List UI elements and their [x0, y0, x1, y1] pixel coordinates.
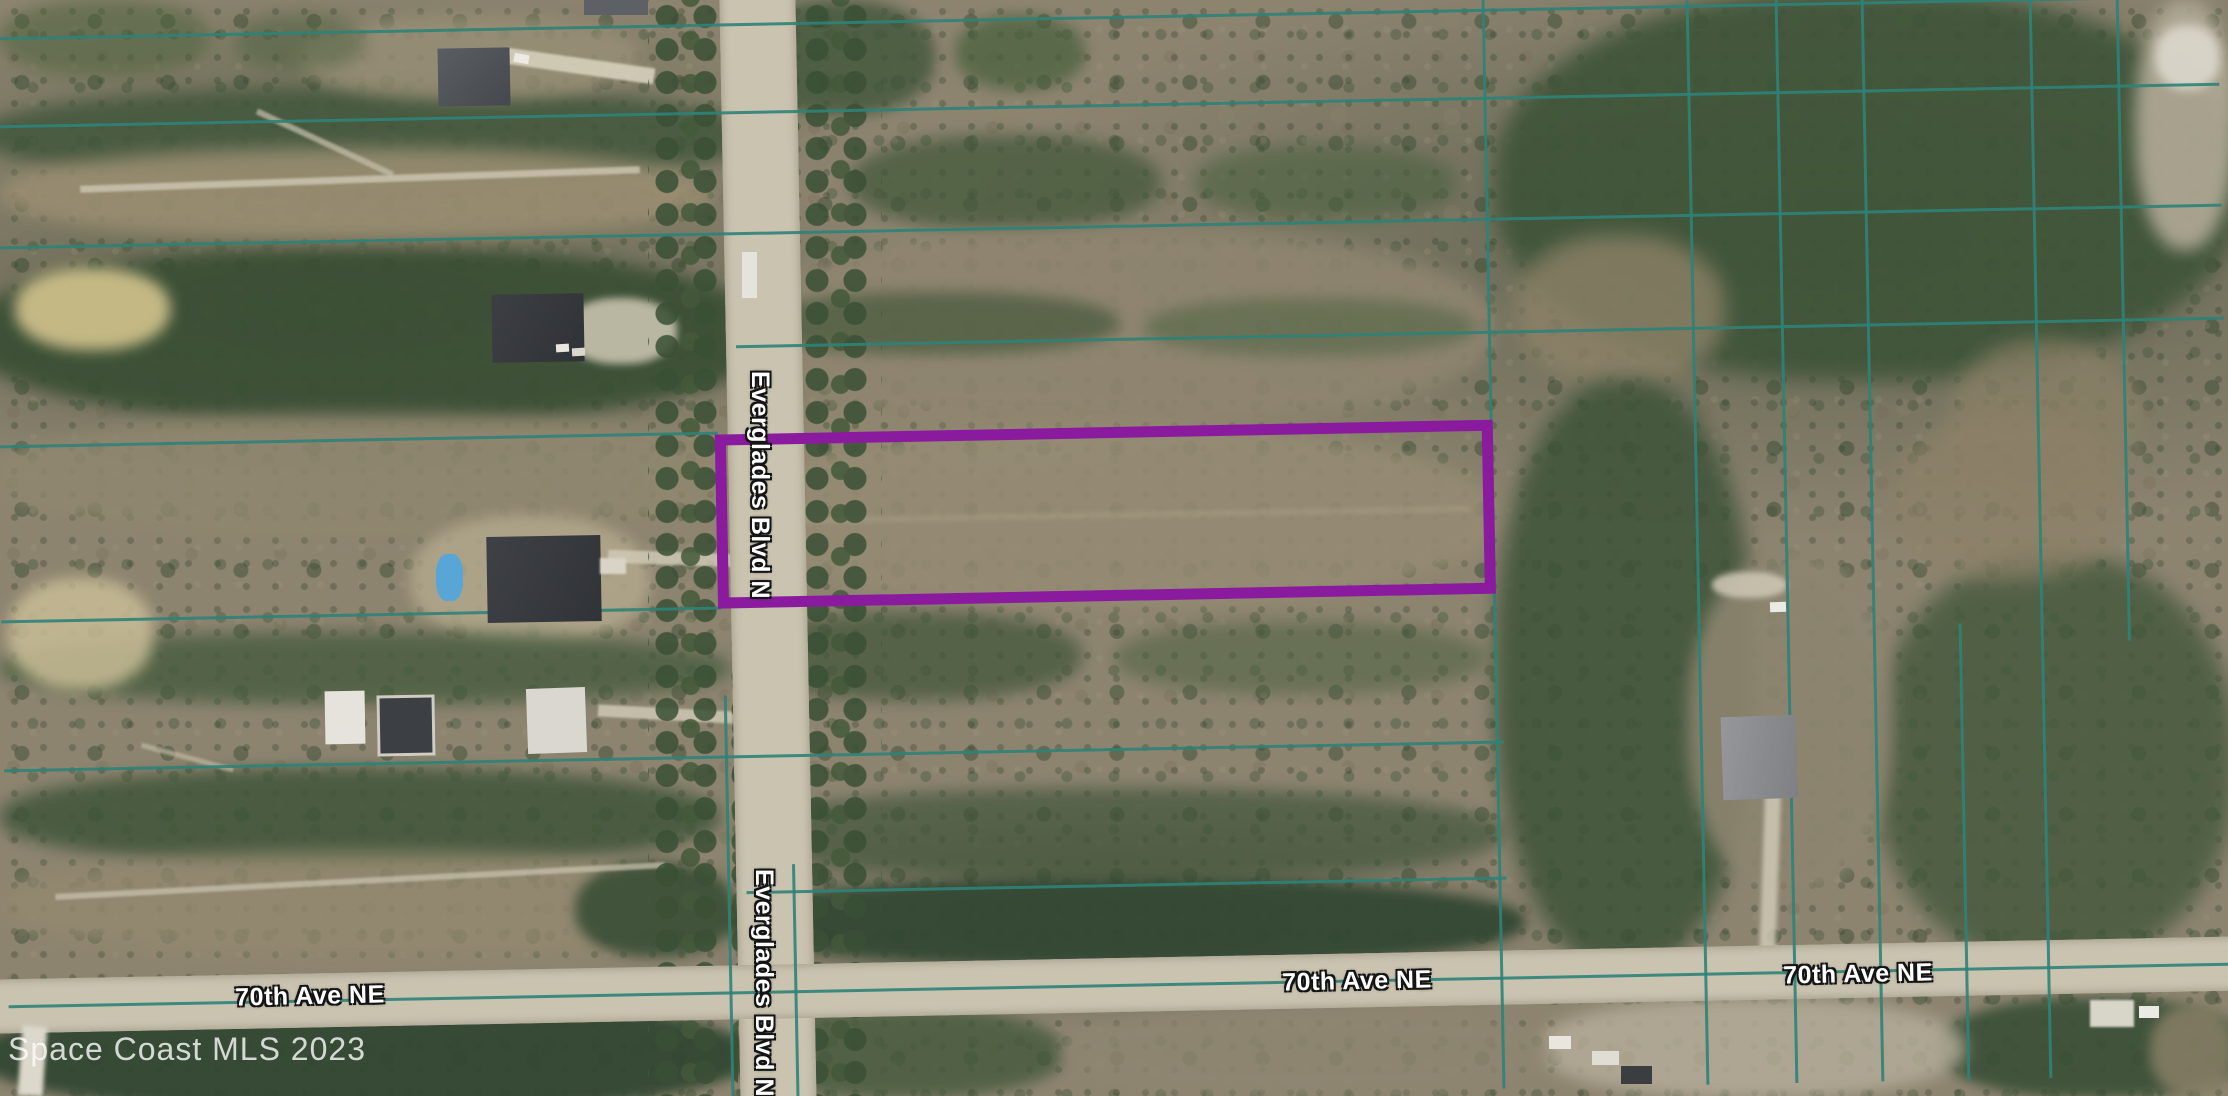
car — [556, 344, 569, 353]
house-roof — [491, 293, 584, 363]
car — [1770, 602, 1786, 613]
road-label-70th-ave-right: 70th Ave NE — [1778, 960, 1938, 988]
house-roof — [584, 0, 648, 15]
car — [1592, 1051, 1619, 1065]
car — [572, 348, 585, 357]
car — [2139, 1006, 2159, 1018]
swimming-pool — [436, 554, 463, 601]
buildings-layer — [0, 0, 2228, 1096]
shed-roof — [325, 691, 366, 745]
shed-roof — [376, 694, 435, 756]
shed-roof — [526, 687, 587, 754]
house-roof — [1721, 715, 1799, 801]
truck-on-road — [742, 252, 757, 298]
road-label-70th-ave-left: 70th Ave NE — [230, 982, 390, 1010]
road-label-70th-ave-center: 70th Ave NE — [1277, 967, 1437, 995]
road-label-everglades-bottom: Everglades Blvd N — [751, 869, 776, 1096]
satellite-map[interactable]: Everglades Blvd N Everglades Blvd N 70th… — [0, 0, 2228, 1096]
driveway-pad — [600, 558, 626, 574]
car — [513, 53, 529, 64]
shed-roof — [1621, 1066, 1652, 1084]
road-label-everglades-top: Everglades Blvd N — [747, 371, 772, 599]
house-roof — [437, 47, 510, 106]
driveway-pad — [2090, 1000, 2134, 1027]
mls-watermark: Space Coast MLS 2023 — [8, 1031, 366, 1068]
house-roof — [486, 535, 601, 623]
car — [1549, 1036, 1571, 1049]
